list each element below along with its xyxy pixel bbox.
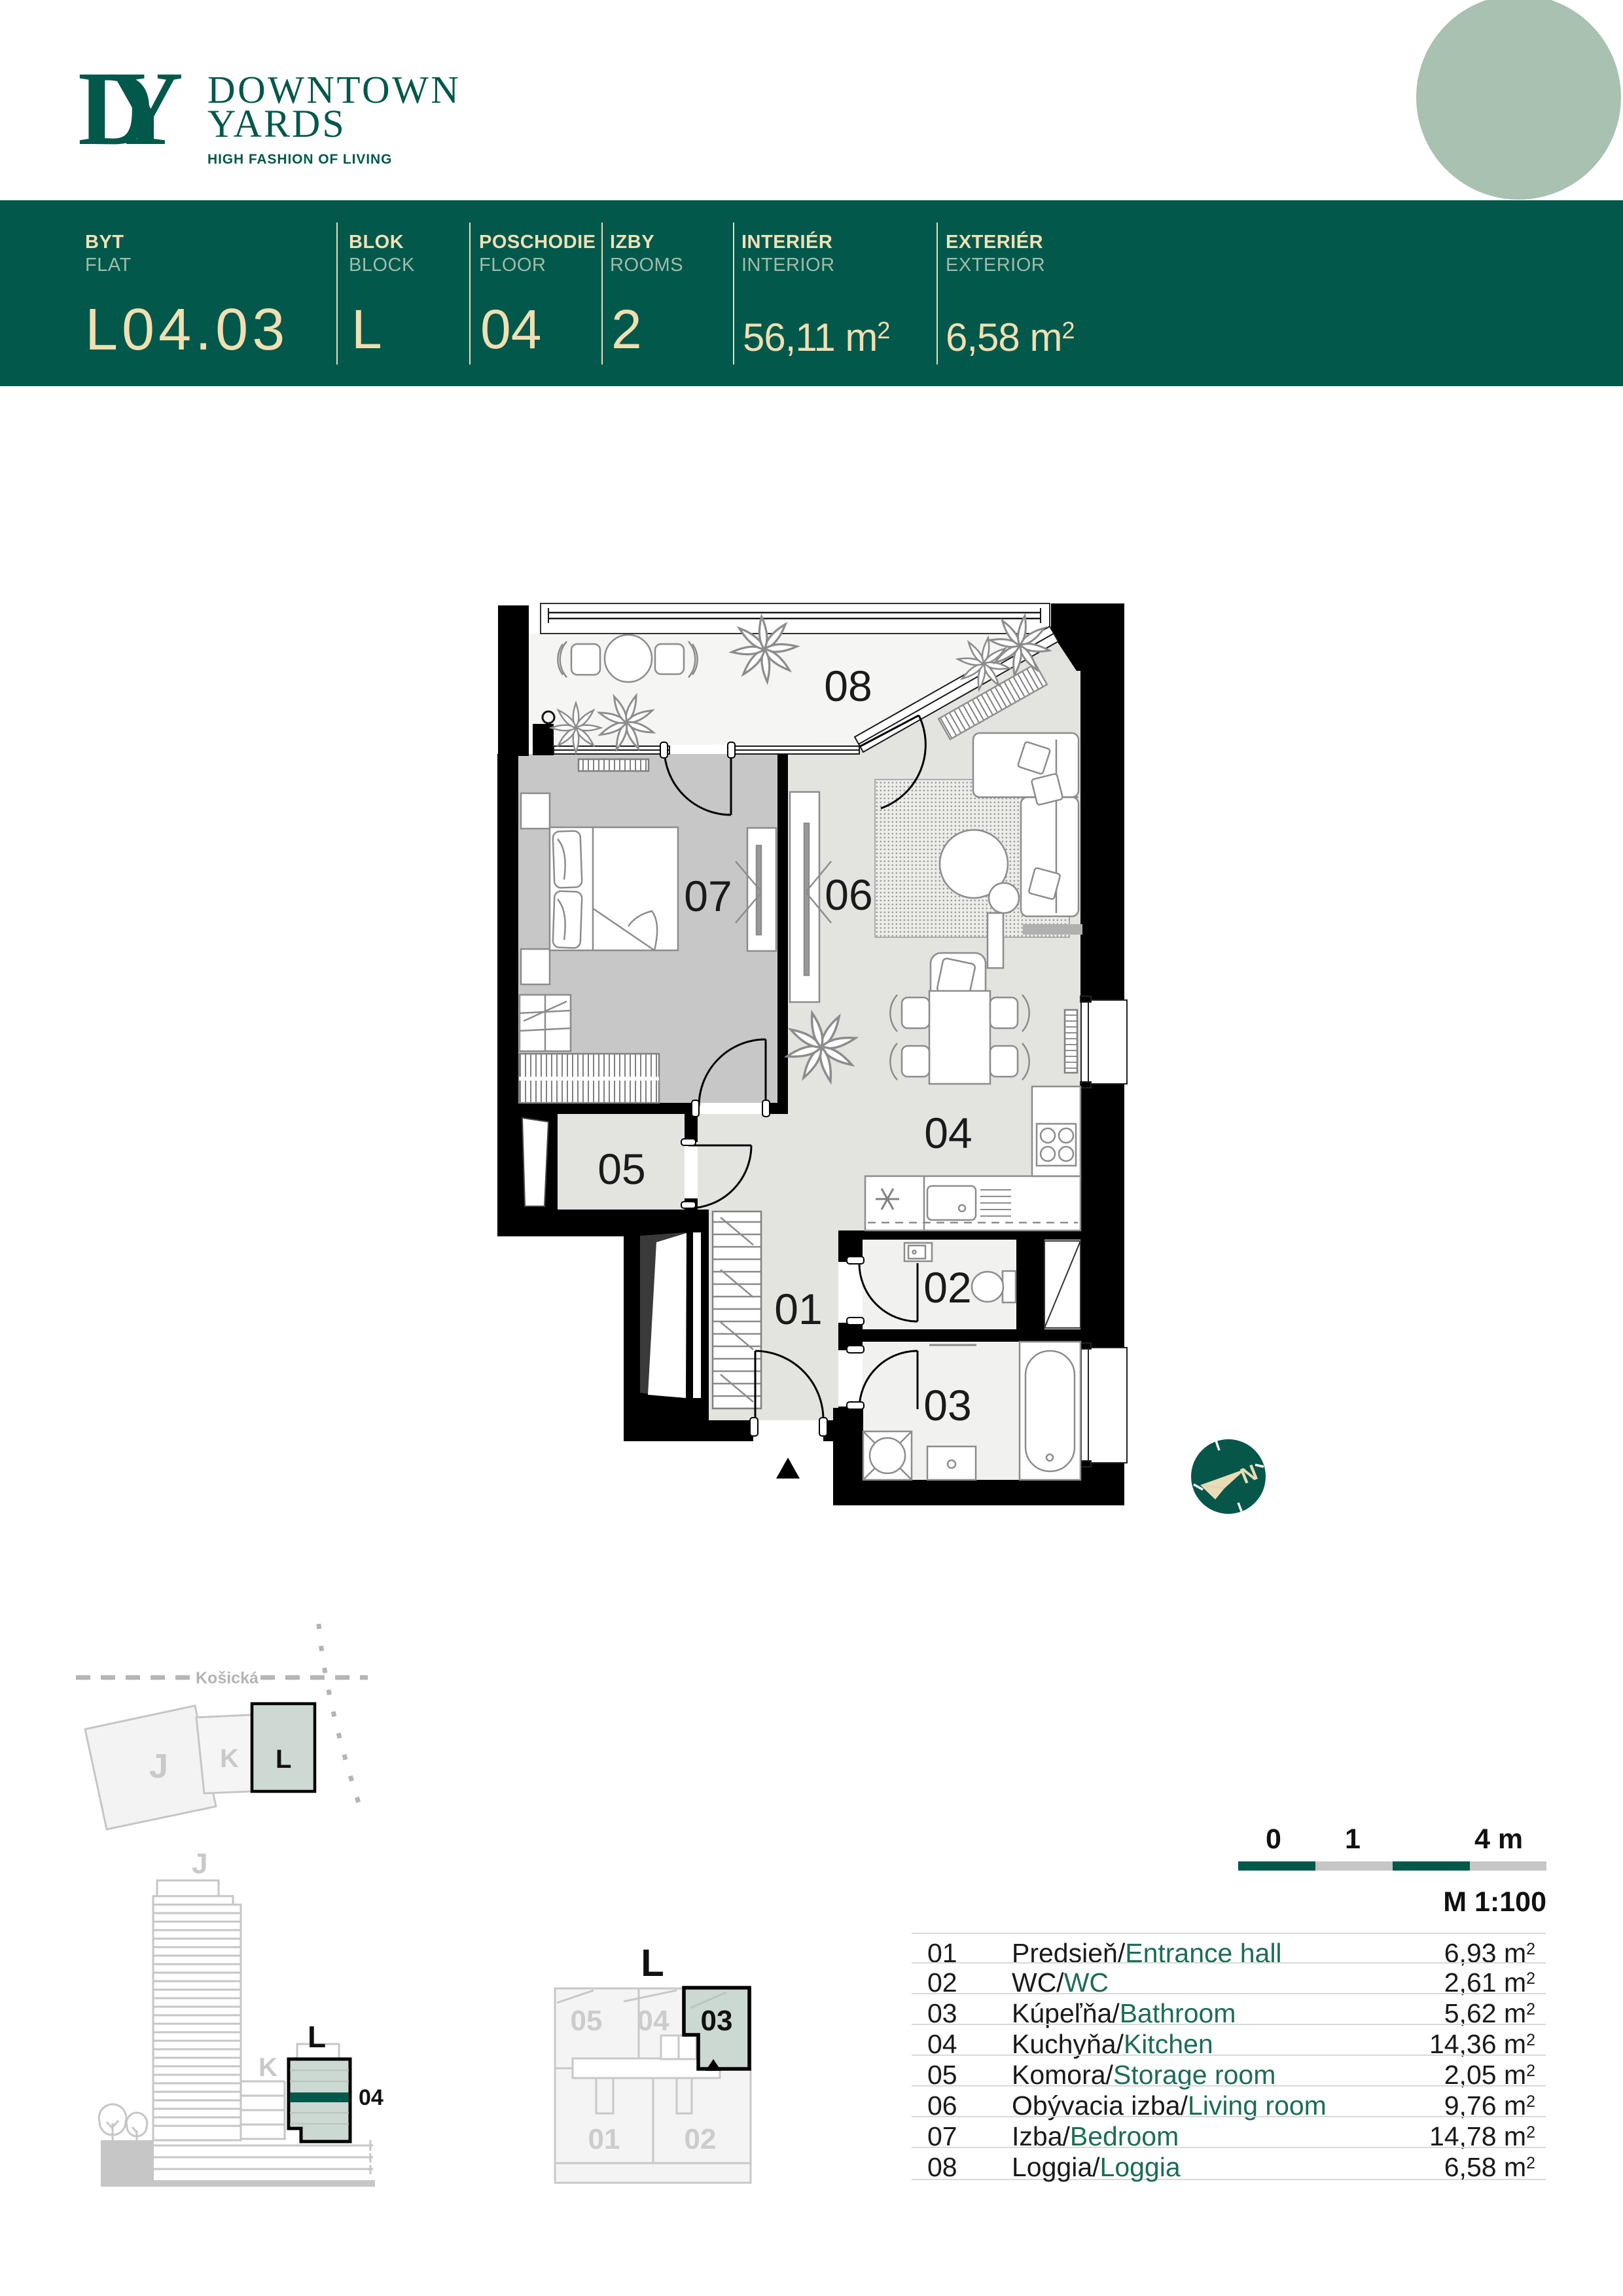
- svg-text:05: 05: [597, 1145, 645, 1193]
- svg-text:J: J: [149, 1748, 168, 1785]
- svg-text:Košická: Košická: [196, 1669, 259, 1687]
- svg-text:L: L: [641, 1942, 664, 1984]
- svg-text:K: K: [259, 2053, 277, 2082]
- svg-text:05: 05: [571, 2005, 603, 2037]
- svg-text:K: K: [220, 1744, 239, 1773]
- svg-text:L: L: [308, 2020, 326, 2054]
- svg-text:J: J: [192, 1848, 207, 1880]
- svg-text:04: 04: [637, 2005, 669, 2037]
- svg-text:04: 04: [924, 1109, 972, 1157]
- svg-text:03: 03: [923, 1381, 971, 1429]
- svg-text:06: 06: [825, 870, 872, 919]
- svg-text:01: 01: [774, 1285, 822, 1333]
- svg-text:04: 04: [359, 2085, 383, 2110]
- svg-text:03: 03: [701, 2005, 733, 2037]
- svg-text:L: L: [276, 1745, 291, 1774]
- svg-text:02: 02: [685, 2123, 717, 2155]
- svg-text:07: 07: [684, 872, 732, 920]
- svg-text:01: 01: [588, 2123, 620, 2155]
- svg-text:08: 08: [824, 662, 872, 710]
- svg-text:02: 02: [923, 1263, 971, 1312]
